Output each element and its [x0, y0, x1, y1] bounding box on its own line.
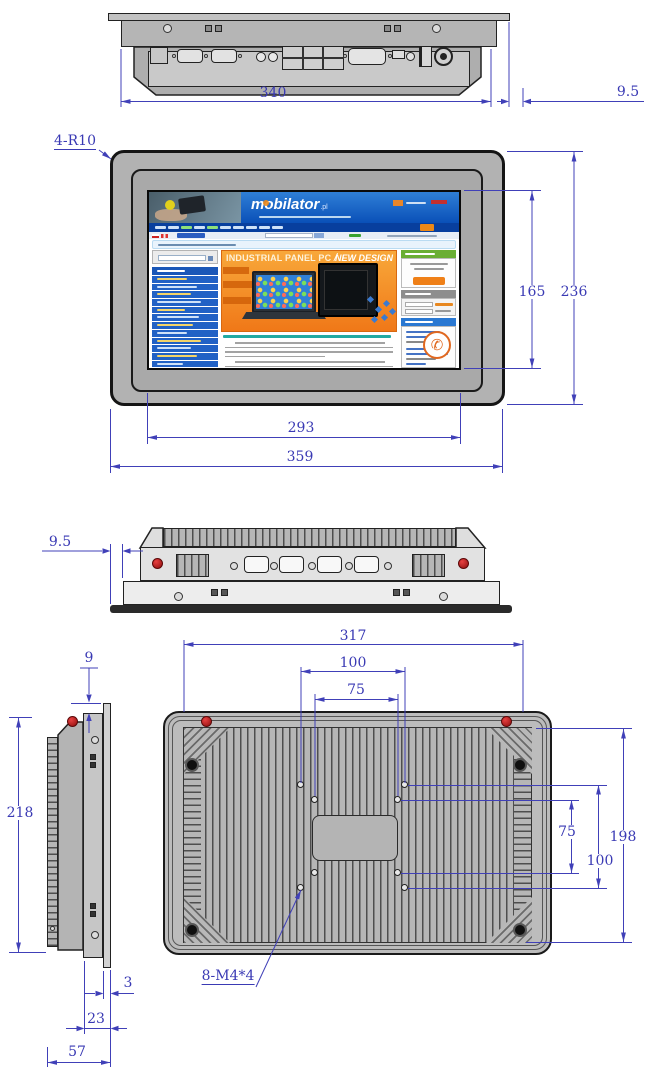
nav-item-highlight [420, 224, 434, 231]
web-sidebar [152, 250, 218, 368]
social-cube [389, 308, 396, 315]
dim-vesa-right-75: 75 [556, 825, 578, 839]
antenna-knob [201, 716, 212, 727]
web-header: mobilator .pl [149, 192, 459, 223]
banner-subtitle: NEW DESIGN [335, 253, 393, 263]
plate-slot [403, 589, 410, 596]
antenna-knob [152, 558, 163, 569]
dvi-port [348, 48, 386, 65]
web-substrip [149, 232, 459, 239]
banner-label [223, 267, 249, 274]
category-item [152, 322, 218, 329]
serial-port [354, 556, 379, 573]
serial-port [244, 556, 269, 573]
nav-item [246, 226, 257, 229]
laptop-display [256, 275, 312, 309]
header-tagline [259, 216, 351, 218]
flag-icon [161, 234, 168, 238]
sidebar-category-list [152, 276, 218, 368]
power-port [150, 47, 168, 64]
panel-pc-technical-drawing: mobilator .pl [0, 0, 646, 1080]
flange-screw-hole [432, 24, 441, 33]
vesa-hole-75 [311, 796, 318, 803]
newsletter-button [413, 277, 445, 285]
newsletter-text [414, 268, 444, 270]
flange-slot [384, 25, 391, 32]
sidebar-search-select [158, 255, 206, 261]
newsletter-header [401, 250, 456, 258]
center-mount-plate [312, 815, 398, 861]
login-input [405, 309, 433, 314]
port-screw [308, 562, 316, 570]
dim-total-depth: 57 [68, 1045, 86, 1059]
profile-front-edge [103, 703, 111, 968]
phone-icon: ✆ [431, 338, 444, 353]
plate-slot [393, 589, 400, 596]
category-item [152, 276, 218, 283]
news-header [401, 318, 456, 326]
nav-item [194, 226, 205, 229]
corner-screw [513, 758, 527, 772]
category-item [152, 353, 218, 360]
plate-screw-hole [91, 931, 99, 939]
plate-slot [90, 754, 96, 760]
block-divider [282, 57, 344, 59]
logo-orange-dot [263, 200, 269, 206]
web-navbar [149, 223, 459, 232]
plate-slot [211, 589, 218, 596]
login-box [401, 298, 456, 316]
antenna-knob [458, 558, 469, 569]
nav-item [233, 226, 244, 229]
top-mount-flange [121, 20, 497, 47]
category-item [152, 361, 218, 368]
dim-rear-offset: 9 [85, 651, 94, 665]
antenna-knob [67, 716, 78, 727]
infobar-text [158, 244, 236, 246]
vent-grille [176, 554, 209, 577]
port-screw [204, 54, 208, 58]
site-logo-text: mobilator [251, 196, 319, 213]
port-screw [238, 54, 242, 58]
vesa-hole-100 [401, 781, 408, 788]
flange-screw-hole [163, 24, 172, 33]
dim-back-height: 198 [608, 830, 639, 844]
plate-screw-hole [439, 592, 448, 601]
small-port [392, 50, 405, 59]
status-green [349, 234, 361, 237]
dim-front-height: 236 [559, 285, 590, 299]
nav-item [272, 226, 283, 229]
vesa-hole-100 [297, 781, 304, 788]
header-photo [149, 192, 241, 223]
heatsink-fins-column [47, 737, 58, 947]
plate-slot [90, 903, 96, 909]
news-link [406, 363, 426, 365]
plate-slot [90, 911, 96, 917]
nav-item [181, 226, 192, 229]
partner-logo-red [431, 200, 447, 204]
newsletter-box [401, 258, 456, 288]
dim-front-width: 359 [287, 450, 314, 464]
heatsink-fins-left [184, 747, 201, 923]
port-screw [172, 54, 176, 58]
login-text [435, 310, 451, 312]
site-logo-tld: .pl [320, 204, 327, 211]
audio-jack [256, 52, 266, 62]
heatsink-fins-right [514, 747, 531, 923]
flange-slot [394, 25, 401, 32]
banner-label [223, 281, 253, 288]
nav-item [220, 226, 231, 229]
category-item [152, 307, 218, 314]
social-cube [381, 314, 388, 321]
corner-screw [513, 923, 527, 937]
body-hole [50, 926, 55, 931]
banner-label [223, 297, 251, 304]
web-infobar [149, 239, 459, 250]
heatsink-fins-top [163, 528, 456, 547]
dim-side-height: 218 [5, 806, 36, 820]
port-screw [345, 562, 353, 570]
social-cube [383, 300, 390, 307]
dim-lip-depth: 3 [124, 976, 133, 990]
vga-port [177, 49, 203, 63]
front-glass-edge [110, 605, 512, 613]
photo-scanner [178, 195, 206, 214]
vesa-hole-100 [401, 884, 408, 891]
nav-item [259, 226, 270, 229]
dim-mount-thread: 8-M4*4 [202, 969, 255, 985]
nav-item [155, 226, 166, 229]
serial-port [279, 556, 304, 573]
reset-hole [406, 52, 415, 61]
substrip-text [387, 235, 437, 237]
article-headline [223, 335, 391, 338]
newsletter-text [410, 263, 448, 265]
search-box [265, 233, 313, 238]
dim-side-lip: 9.5 [49, 535, 71, 549]
dim-top-lip: 9.5 [617, 85, 639, 99]
banner-title: INDUSTRIAL PANEL PC [226, 253, 331, 263]
dim-screen-width: 293 [288, 421, 315, 435]
flag-icon [152, 234, 159, 238]
search-button [314, 233, 324, 238]
web-banner: INDUSTRIAL PANEL PC / NEW DESIGN [221, 250, 397, 332]
news-header-text [405, 321, 433, 323]
port-screw [230, 562, 238, 570]
sidebar-search [152, 250, 218, 264]
plate-screw-hole [174, 592, 183, 601]
dim-corner-radius: 4-R10 [54, 134, 96, 150]
plate-screw-hole [91, 736, 99, 744]
corner-screw [185, 758, 199, 772]
port-screw [270, 562, 278, 570]
dim-vesa-top-100: 100 [340, 656, 367, 670]
flange-slot [215, 25, 222, 32]
corner-screw [185, 923, 199, 937]
login-header [401, 290, 456, 298]
dim-vesa-right-100: 100 [585, 854, 616, 868]
login-input [405, 302, 433, 307]
category-item [152, 338, 218, 345]
category-item [152, 345, 218, 352]
partner-logo [393, 200, 403, 206]
lcd-screen: mobilator .pl [147, 190, 461, 370]
sidebar-categories-header [152, 267, 218, 275]
vesa-hole-75 [394, 869, 401, 876]
vesa-hole-100 [297, 884, 304, 891]
dim-body-depth: 23 [87, 1012, 105, 1026]
partner-logo-text [406, 202, 426, 204]
vga-port [211, 49, 237, 63]
flange-slot [205, 25, 212, 32]
bracket-port [419, 46, 432, 67]
dim-screen-height: 165 [517, 285, 548, 299]
plate-slot [221, 589, 228, 596]
category-item [152, 314, 218, 321]
webpage-screenshot: mobilator .pl [149, 192, 459, 368]
port-screw [384, 562, 392, 570]
chevron-down-icon [208, 256, 213, 261]
photo-yellow-detail [165, 200, 175, 210]
dim-top-width: 340 [260, 86, 287, 100]
panel-pc-screen [324, 270, 368, 310]
substrip-button [177, 233, 205, 238]
dc-power-pin [440, 53, 447, 60]
dim-vesa-top-75: 75 [347, 683, 365, 697]
nav-item [207, 226, 218, 229]
antenna-knob [501, 716, 512, 727]
newsletter-header-text [405, 253, 435, 255]
banner-laptop-base [242, 312, 326, 319]
profile-mount-plate [83, 713, 103, 958]
plate-slot [90, 762, 96, 768]
category-item [152, 299, 218, 306]
vesa-hole-75 [311, 869, 318, 876]
category-item [152, 291, 218, 298]
serial-port [317, 556, 342, 573]
categories-header-text [157, 270, 185, 272]
vesa-hole-75 [394, 796, 401, 803]
login-header-text [405, 293, 431, 295]
login-link [435, 303, 453, 306]
news-text [406, 358, 436, 360]
banner-laptop-screen [252, 271, 316, 313]
banner-panel-pc [318, 263, 378, 317]
social-cube [371, 316, 378, 323]
dim-back-width: 317 [340, 629, 367, 643]
category-item [152, 330, 218, 337]
audio-jack [268, 52, 278, 62]
phone-contact-badge: ✆ [423, 331, 451, 359]
vent-grille [412, 554, 445, 577]
category-item [152, 284, 218, 291]
nav-item [168, 226, 179, 229]
